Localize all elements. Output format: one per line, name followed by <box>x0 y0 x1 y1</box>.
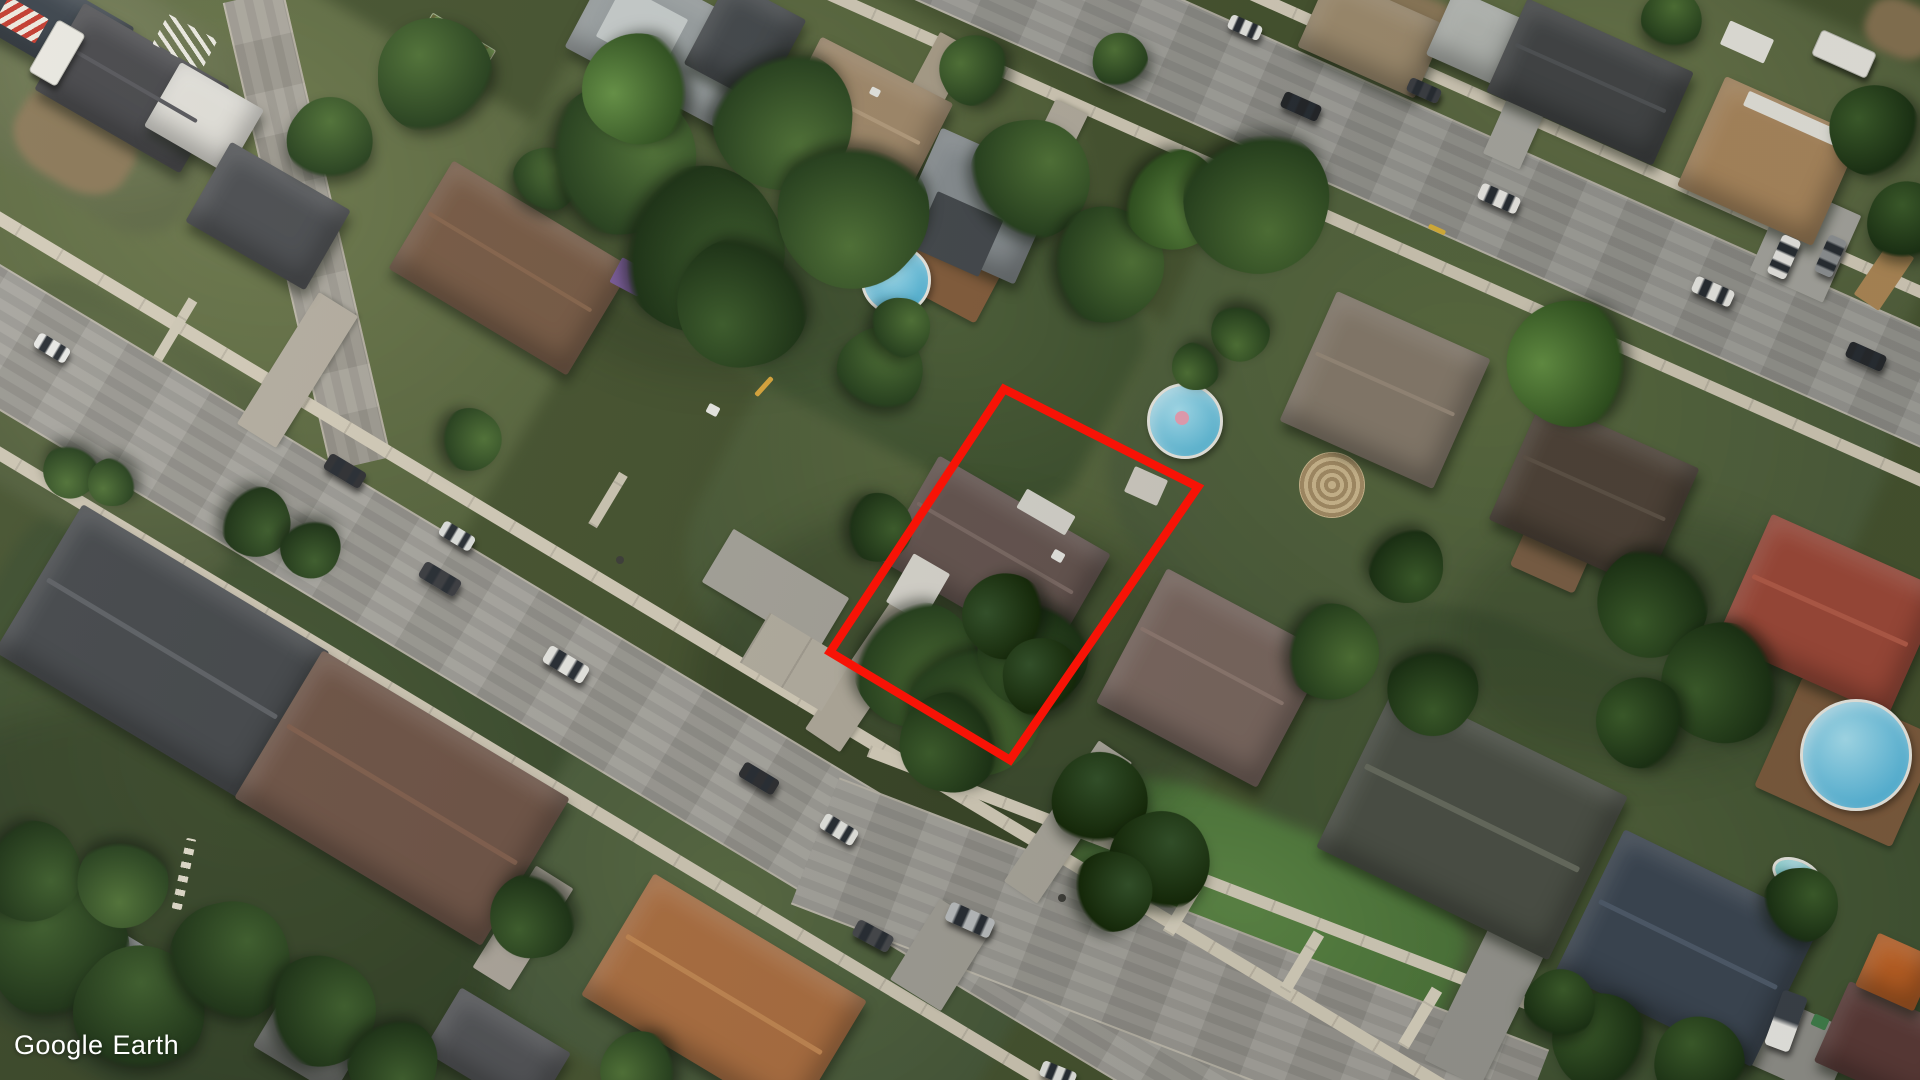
tree <box>87 457 137 507</box>
car-white <box>1038 1060 1077 1080</box>
watermark-brand: Google <box>14 1030 103 1060</box>
pool-float <box>1175 411 1189 425</box>
tree <box>1172 342 1221 391</box>
watermark-product: Earth <box>112 1030 179 1060</box>
front-walk <box>588 472 627 529</box>
road-stain <box>616 556 624 564</box>
google-earth-watermark: GoogleEarth <box>14 1030 179 1061</box>
aerial-satellite-view: GoogleEarth <box>0 0 1920 1080</box>
pool-round-large <box>1800 699 1912 811</box>
tree <box>378 18 493 133</box>
roof-detail <box>705 403 720 417</box>
stone-spiral-garden <box>1299 452 1365 518</box>
road-stain <box>1058 894 1066 902</box>
